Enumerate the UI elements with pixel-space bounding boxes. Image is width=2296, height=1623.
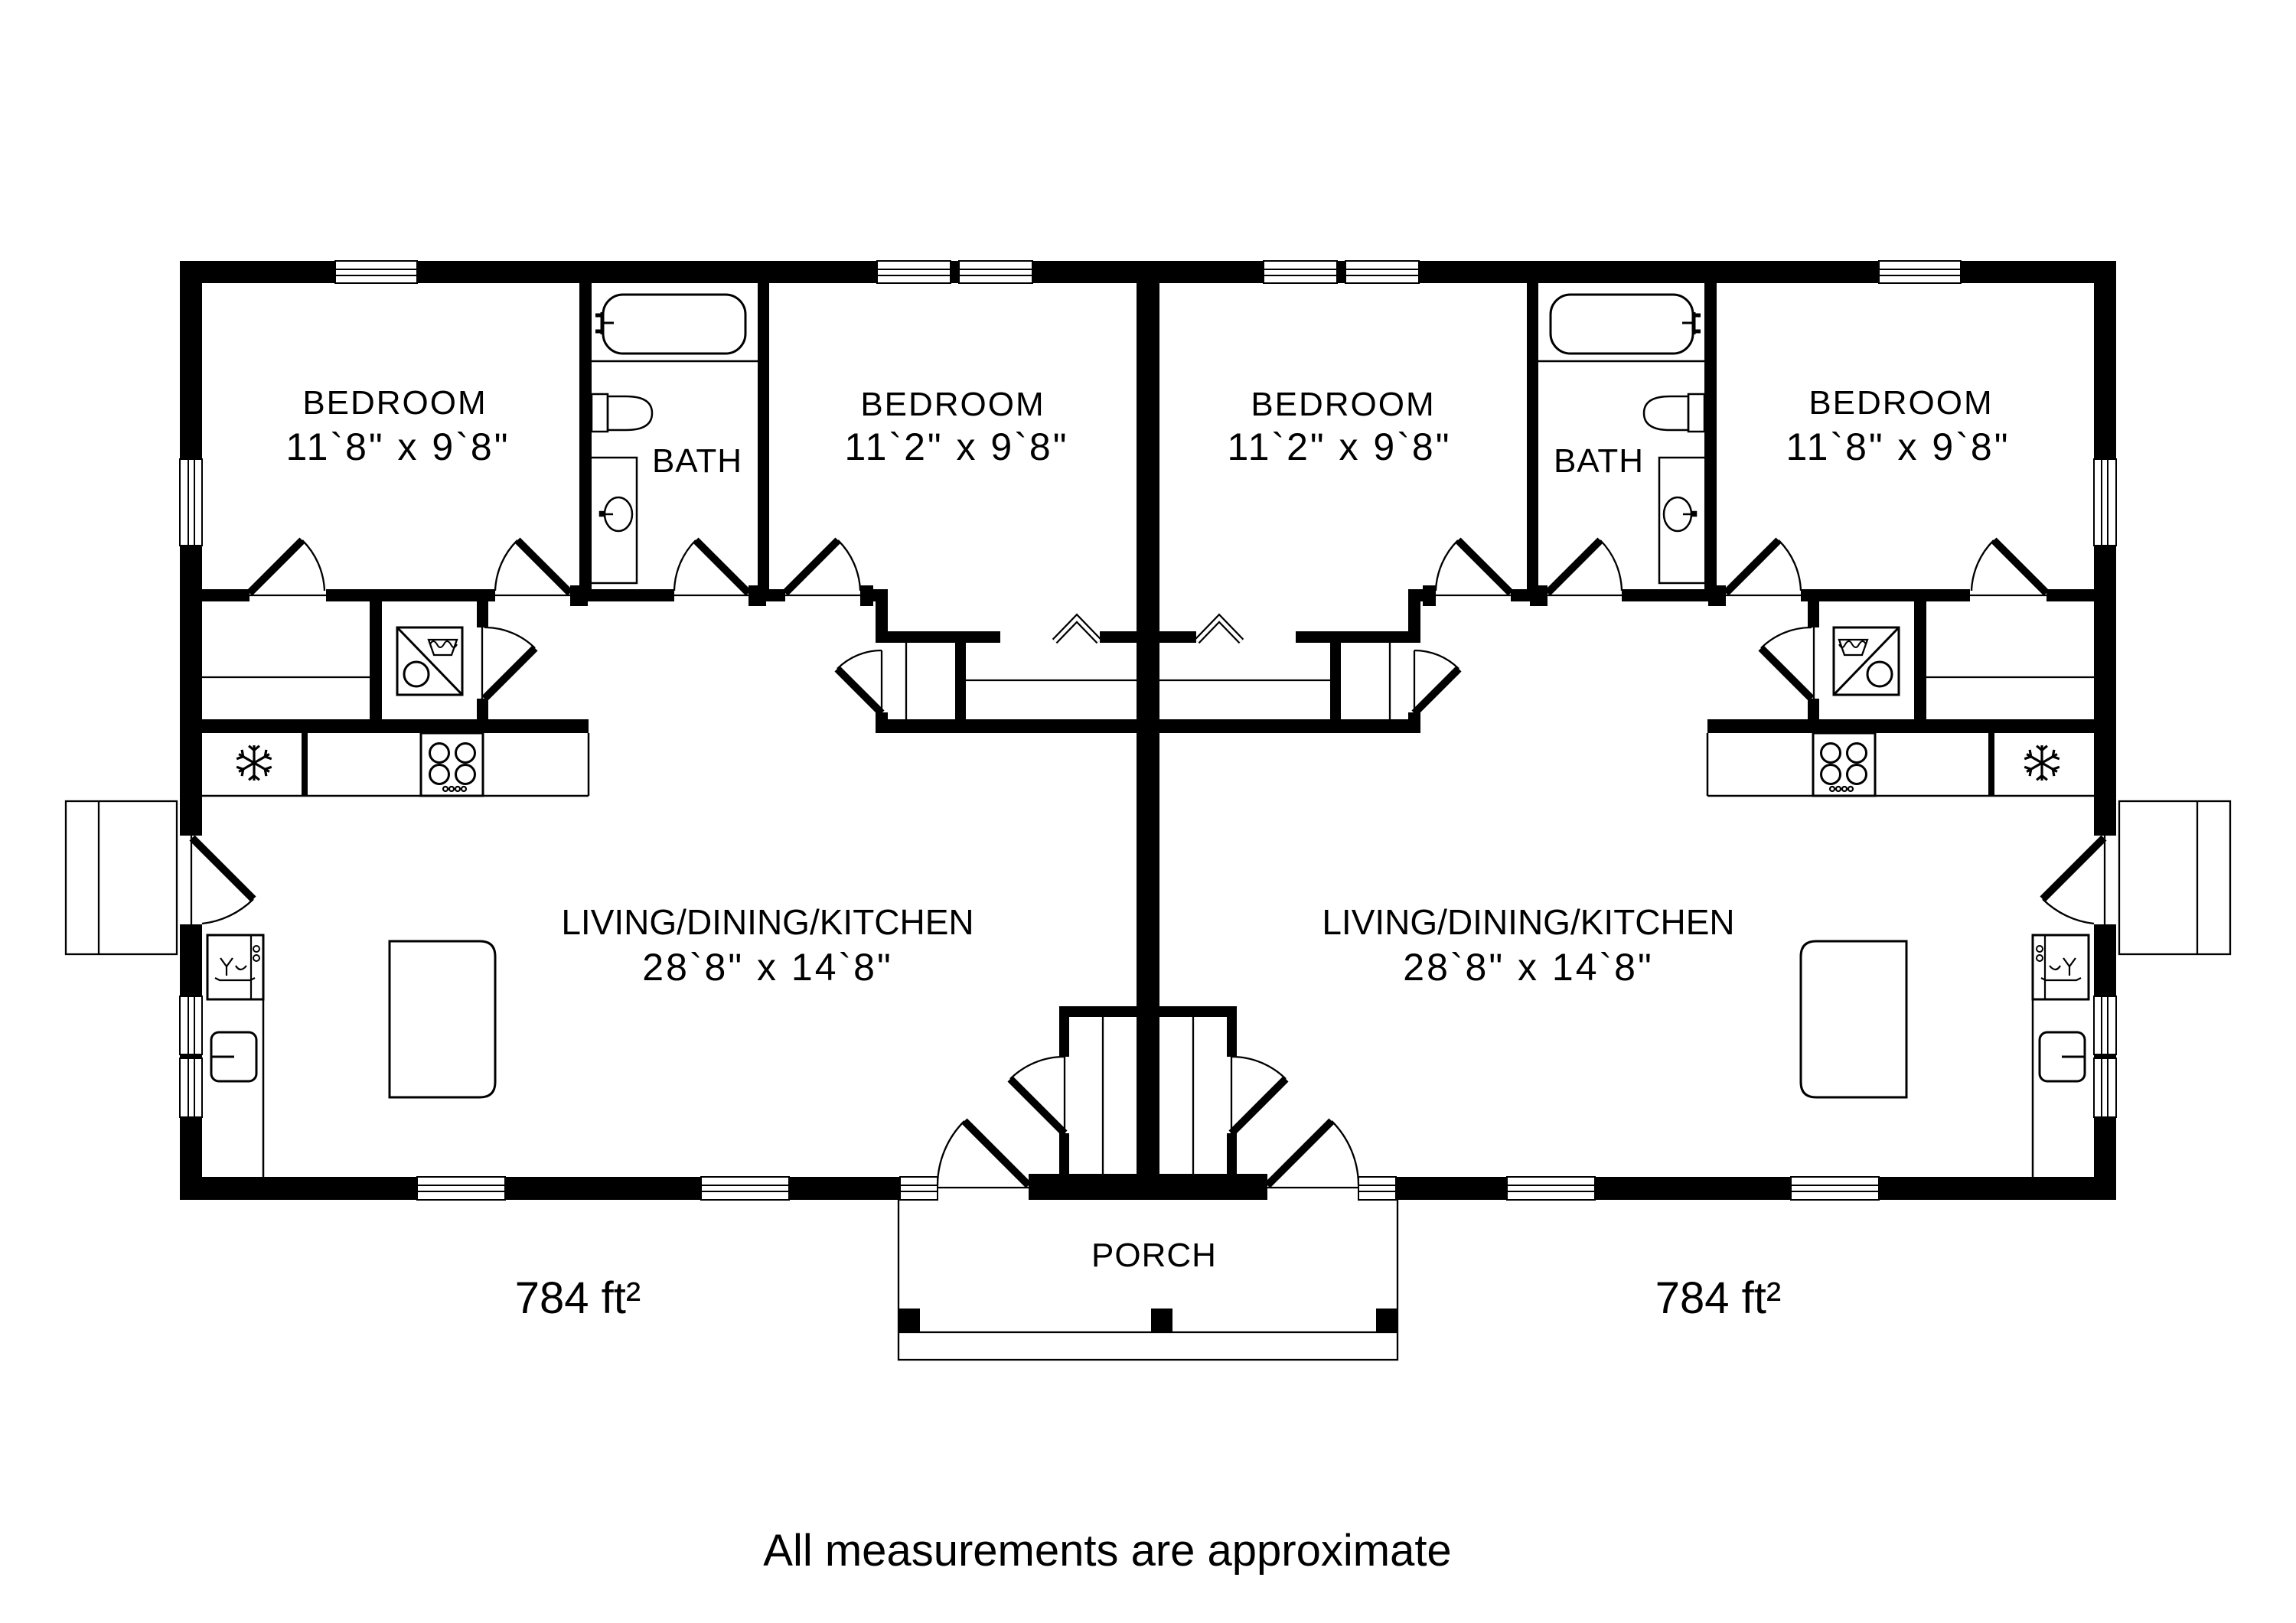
svg-text:11`8" x 9`8": 11`8" x 9`8"	[1786, 425, 2011, 468]
svg-text:784 ft²: 784 ft²	[1655, 1273, 1781, 1323]
svg-text:28`8" x 14`8": 28`8" x 14`8"	[1403, 946, 1653, 989]
svg-text:LIVING/DINING/KITCHEN: LIVING/DINING/KITCHEN	[1322, 902, 1734, 942]
svg-text:BATH: BATH	[652, 442, 742, 480]
svg-text:BEDROOM: BEDROOM	[860, 386, 1045, 423]
svg-text:11`2" x 9`8": 11`2" x 9`8"	[1228, 425, 1452, 468]
svg-text:11`2" x 9`8": 11`2" x 9`8"	[845, 425, 1069, 468]
svg-text:BATH: BATH	[1554, 442, 1644, 480]
svg-text:PORCH: PORCH	[1091, 1237, 1217, 1274]
svg-text:All measurements are approxima: All measurements are approximate	[763, 1526, 1451, 1576]
svg-text:BEDROOM: BEDROOM	[1251, 386, 1435, 423]
svg-text:11`8" x 9`8": 11`8" x 9`8"	[286, 425, 510, 468]
svg-text:LIVING/DINING/KITCHEN: LIVING/DINING/KITCHEN	[561, 902, 974, 942]
svg-text:28`8" x 14`8": 28`8" x 14`8"	[642, 946, 892, 989]
svg-text:BEDROOM: BEDROOM	[302, 384, 487, 422]
svg-text:BEDROOM: BEDROOM	[1808, 384, 1993, 422]
svg-text:784 ft²: 784 ft²	[515, 1273, 641, 1323]
